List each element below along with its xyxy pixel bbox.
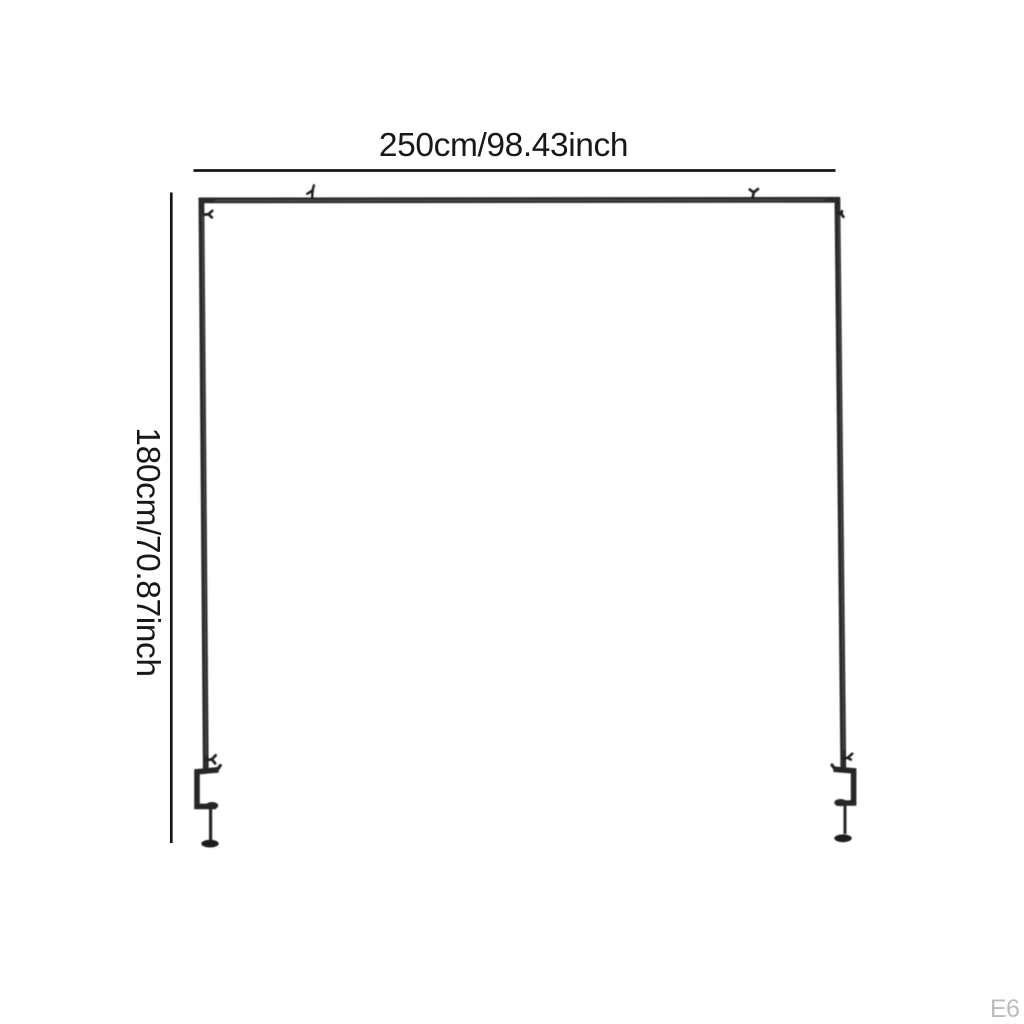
- svg-text:E6: E6: [990, 995, 1019, 1023]
- svg-text:250cm/98.43inch: 250cm/98.43inch: [379, 127, 628, 164]
- svg-text:180cm/70.87inch: 180cm/70.87inch: [129, 427, 166, 676]
